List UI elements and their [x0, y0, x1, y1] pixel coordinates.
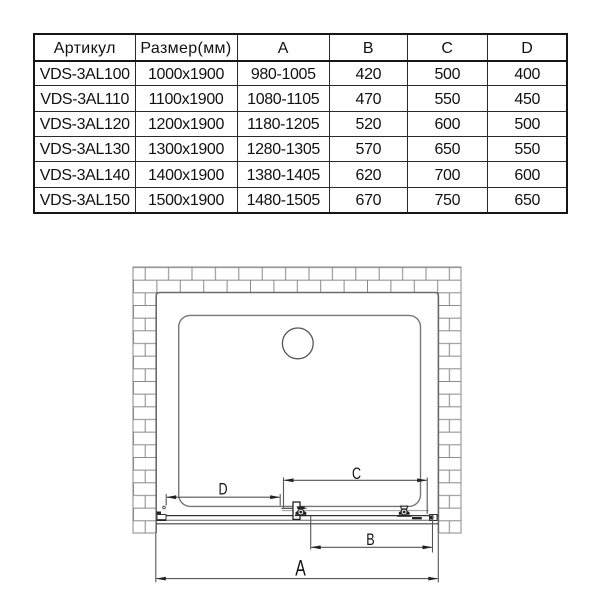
svg-text:C: C — [352, 464, 361, 483]
svg-text:D: D — [218, 480, 227, 499]
svg-text:B: B — [366, 530, 374, 549]
svg-text:A: A — [295, 557, 306, 581]
